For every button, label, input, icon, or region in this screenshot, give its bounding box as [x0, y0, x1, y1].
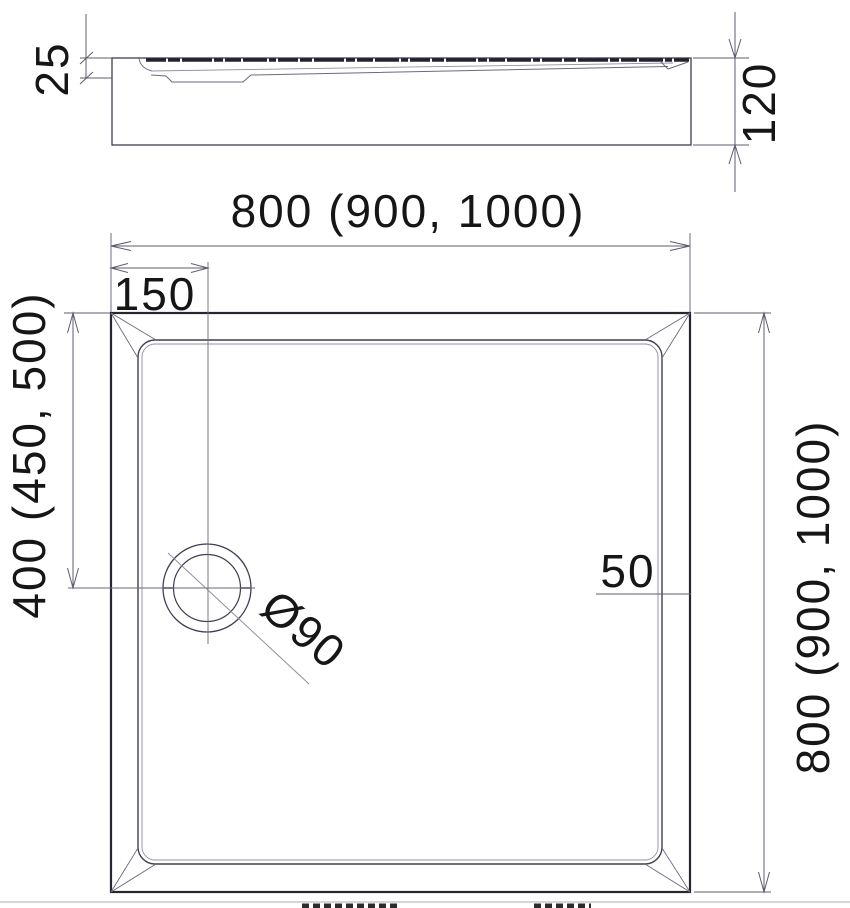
page-bottom-edge: [0, 902, 850, 906]
plan-view: Ø90 800 (900, 1000) 150 400 (450, 500): [3, 185, 839, 892]
dim-total-height: 120: [693, 12, 785, 192]
dim-rim-height: 25: [26, 14, 112, 97]
side-view: 25 120: [26, 12, 785, 192]
drain-offset-top-label: 400 (450, 500): [3, 291, 55, 618]
dim-depth: 800 (900, 1000): [694, 313, 839, 892]
dim-drain-offset-top: 400 (450, 500): [3, 291, 110, 618]
rim-height-label: 25: [26, 41, 78, 96]
technical-drawing-page: 25 120 Ø90: [0, 0, 850, 908]
side-right-rim-notch: [660, 61, 688, 69]
side-profile-body: [112, 58, 691, 145]
total-height-label: 120: [733, 62, 785, 145]
side-floor-line-upper: [151, 63, 673, 71]
side-floor-line-with-drain-trap: [151, 67, 668, 83]
depth-label: 800 (900, 1000): [787, 420, 839, 775]
width-label: 800 (900, 1000): [231, 185, 586, 237]
dim-width: 800 (900, 1000): [111, 185, 690, 312]
shower-tray-drawing: 25 120 Ø90: [0, 0, 850, 908]
tray-outer-edge: [111, 313, 690, 892]
rim-width-label: 50: [600, 545, 655, 597]
drain-offset-left-label: 150: [114, 268, 197, 320]
dim-drain-offset-left: 150: [111, 264, 208, 321]
